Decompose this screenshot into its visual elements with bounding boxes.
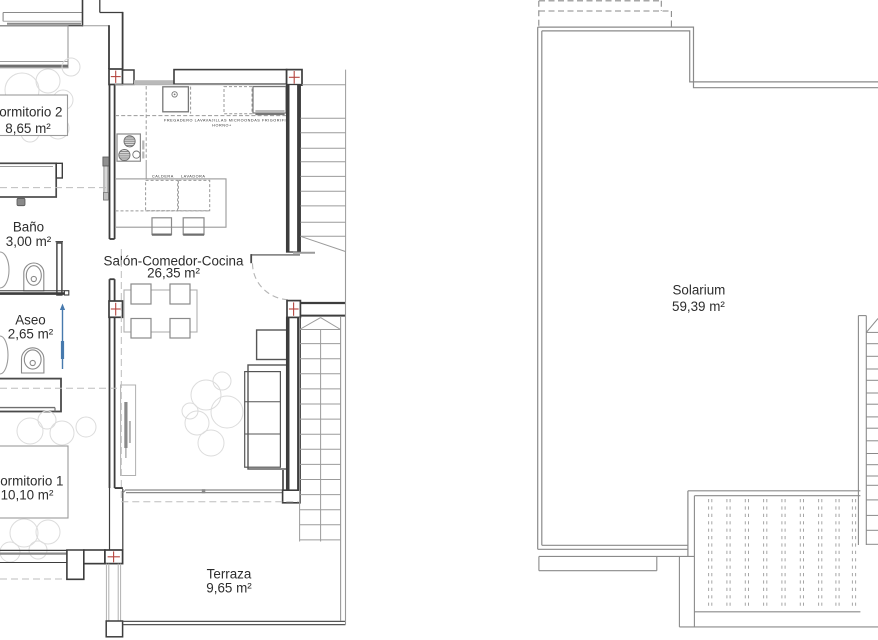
- svg-text:HORNO+: HORNO+: [212, 124, 232, 128]
- svg-text:Terraza: Terraza: [207, 567, 252, 582]
- svg-text:8,65 m²: 8,65 m²: [5, 121, 51, 136]
- svg-text:Aseo: Aseo: [15, 313, 46, 328]
- svg-text:3,00 m²: 3,00 m²: [6, 234, 52, 249]
- svg-text:26,35 m²: 26,35 m²: [147, 266, 200, 281]
- svg-text:10,10 m²: 10,10 m²: [1, 488, 54, 503]
- svg-text:2,65 m²: 2,65 m²: [8, 327, 54, 342]
- svg-text:9,65 m²: 9,65 m²: [206, 581, 252, 596]
- svg-text:Solarium: Solarium: [673, 283, 726, 298]
- svg-text:CALDERA: CALDERA: [152, 175, 174, 179]
- svg-text:FREGADERO LAVAVAJILLAS MICRO: FREGADERO LAVAVAJILLAS MICROONDAS FRIGOR…: [164, 119, 293, 123]
- svg-text:LAVADORA: LAVADORA: [181, 175, 206, 179]
- svg-text:Dormitorio 2: Dormitorio 2: [0, 105, 62, 120]
- svg-text:59,39 m²: 59,39 m²: [672, 299, 725, 314]
- svg-text:Dormitorio 1: Dormitorio 1: [0, 474, 63, 489]
- svg-text:Baño: Baño: [13, 220, 44, 235]
